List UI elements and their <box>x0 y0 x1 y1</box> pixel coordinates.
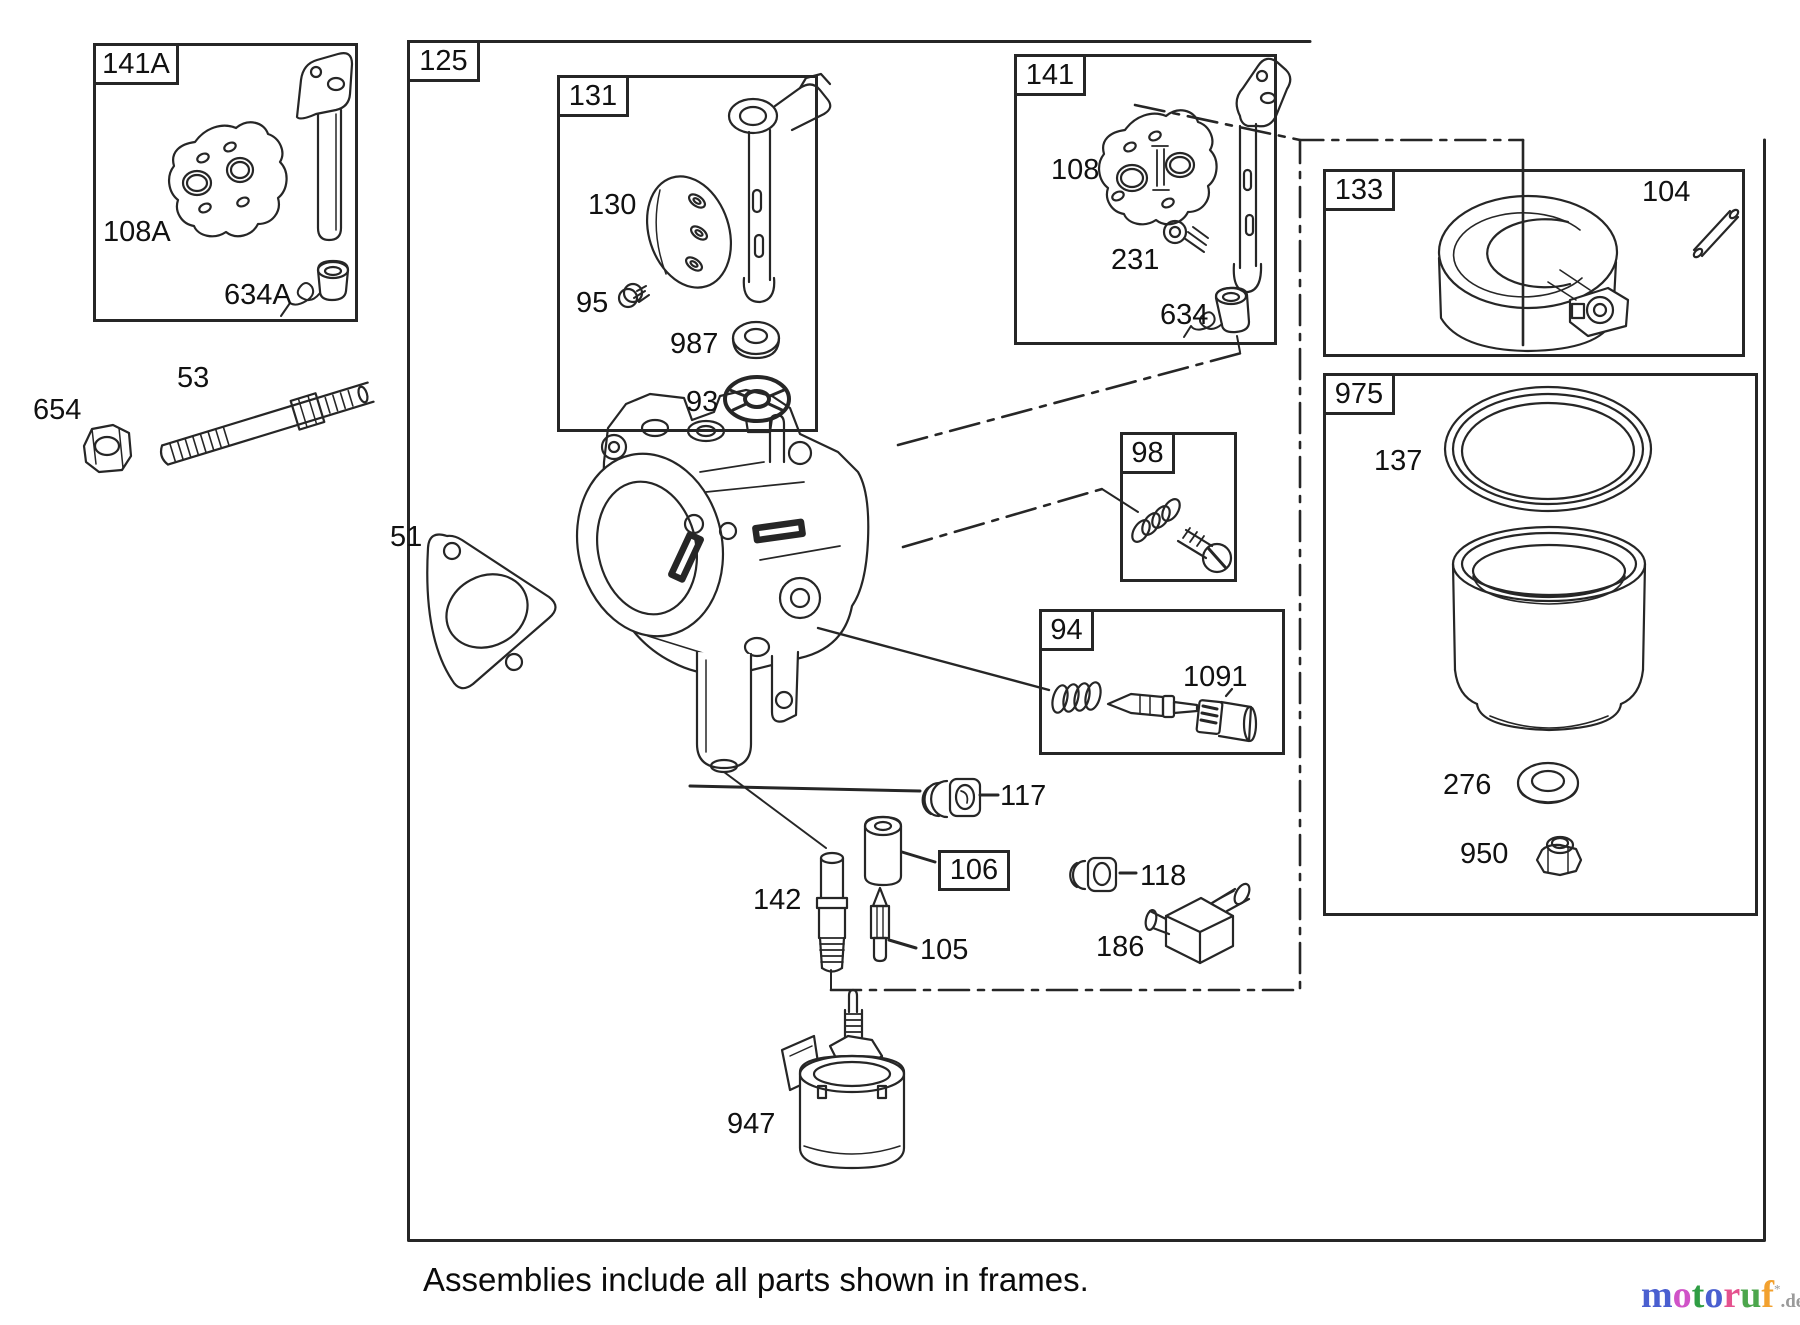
part-label-104: 104 <box>1642 178 1690 207</box>
part-label-108A: 108A <box>103 218 171 247</box>
part-label-130: 130 <box>588 191 636 220</box>
part-label-137: 137 <box>1374 447 1422 476</box>
part-label-53: 53 <box>177 364 209 393</box>
part-label-142: 142 <box>753 886 801 915</box>
part-label-105: 105 <box>920 936 968 965</box>
part-label-93: 93 <box>686 388 718 417</box>
part-label-108: 108 <box>1051 156 1099 185</box>
part-label-950: 950 <box>1460 840 1508 869</box>
part-label-51: 51 <box>390 523 422 552</box>
part-label-95: 95 <box>576 289 608 318</box>
caption: Assemblies include all parts shown in fr… <box>423 1261 1089 1299</box>
part-label-947: 947 <box>727 1110 775 1139</box>
part-label-117: 117 <box>1000 782 1046 811</box>
logo-letter: o <box>1673 1274 1692 1316</box>
logo-letter: m <box>1641 1274 1673 1316</box>
part-label-987: 987 <box>670 330 718 359</box>
logo-letter: o <box>1704 1274 1723 1316</box>
logo-letter: u <box>1740 1274 1761 1316</box>
motoruf-logo[interactable]: motoruf*.de <box>1641 1276 1800 1314</box>
logo-letter: t <box>1692 1274 1705 1316</box>
part-label-654: 654 <box>33 396 81 425</box>
part-label-634A: 634A <box>224 281 292 310</box>
labels-layer: 108A634A65453511309598793108231634104137… <box>0 0 1800 1325</box>
parts-diagram-page: 141A1311419894133975125106 108A634A65453… <box>0 0 1800 1325</box>
part-label-634: 634 <box>1160 301 1208 330</box>
part-label-1091: 1091 <box>1183 663 1248 692</box>
logo-letters: motoruf <box>1641 1274 1774 1316</box>
part-label-231: 231 <box>1111 246 1159 275</box>
part-label-186: 186 <box>1096 933 1144 962</box>
logo-letter: r <box>1723 1274 1740 1316</box>
logo-letter: f <box>1761 1274 1774 1316</box>
part-label-118: 118 <box>1140 862 1186 891</box>
part-label-276: 276 <box>1443 771 1491 800</box>
logo-suffix: .de <box>1780 1291 1800 1312</box>
